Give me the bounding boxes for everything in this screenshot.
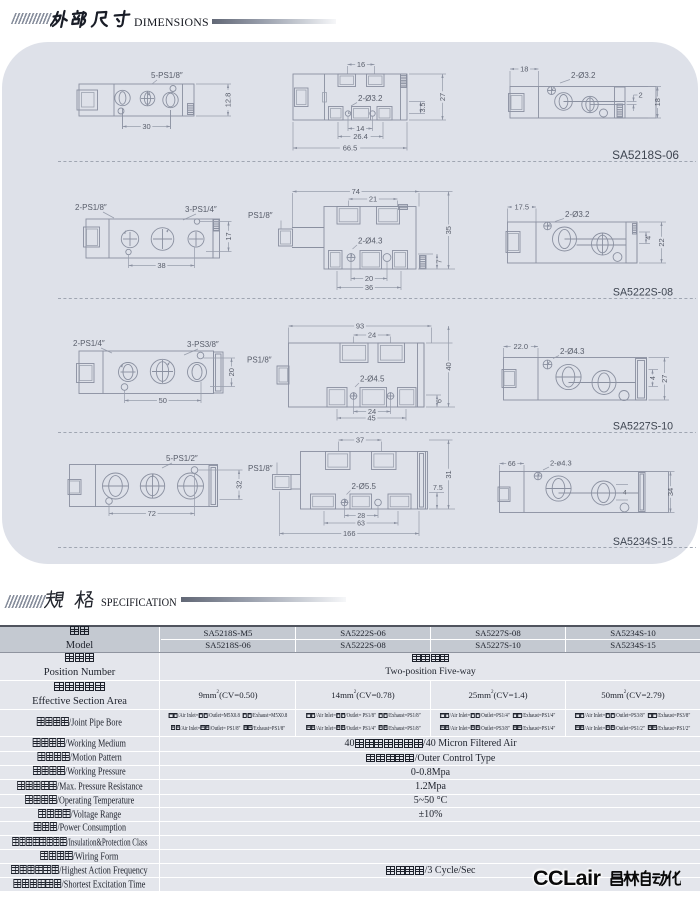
svg-text:50: 50 [159, 396, 167, 405]
svg-text:24: 24 [368, 331, 376, 340]
svg-text:3.5: 3.5 [420, 103, 427, 113]
svg-text:SA5222S-08: SA5222S-08 [613, 287, 673, 299]
svg-text:SA5227S-10: SA5227S-10 [613, 421, 673, 433]
svg-text:3-PS3/8″: 3-PS3/8″ [187, 340, 219, 349]
svg-text:SA5234S-15: SA5234S-15 [613, 536, 673, 548]
svg-text:4: 4 [650, 376, 657, 380]
svg-text:66: 66 [508, 461, 516, 468]
svg-text:38: 38 [157, 261, 165, 270]
svg-text:72: 72 [148, 509, 156, 518]
svg-text:45: 45 [367, 414, 375, 423]
svg-text:36: 36 [365, 283, 373, 292]
svg-text:63: 63 [357, 521, 365, 528]
svg-text:4: 4 [623, 490, 627, 497]
svg-text:26.4: 26.4 [353, 132, 368, 141]
svg-text:5-PS1/8″: 5-PS1/8″ [151, 71, 183, 80]
svg-text:3-PS1/4″: 3-PS1/4″ [185, 205, 217, 214]
svg-text:20: 20 [365, 274, 373, 283]
svg-text:166: 166 [343, 529, 356, 538]
svg-text:4: 4 [645, 236, 652, 240]
svg-text:2-ø4.3: 2-ø4.3 [550, 459, 572, 468]
svg-text:27: 27 [438, 93, 447, 101]
svg-text:PS1/8″: PS1/8″ [247, 356, 272, 365]
svg-text:16: 16 [357, 60, 365, 69]
svg-text:17: 17 [224, 232, 233, 240]
svg-text:35: 35 [444, 226, 453, 234]
svg-text:74: 74 [352, 187, 360, 196]
svg-text:20: 20 [227, 368, 236, 376]
svg-text:SA5218S-06: SA5218S-06 [612, 148, 679, 162]
svg-text:2-Ø4.3: 2-Ø4.3 [560, 347, 585, 356]
svg-text:18: 18 [520, 65, 528, 74]
svg-text:28: 28 [357, 513, 365, 520]
svg-text:27: 27 [660, 375, 669, 383]
svg-text:PS1/8″: PS1/8″ [248, 464, 273, 473]
svg-text:2-Ø3.2: 2-Ø3.2 [565, 210, 590, 219]
svg-text:37: 37 [356, 436, 364, 445]
svg-text:12.8: 12.8 [224, 93, 233, 108]
svg-text:2-Ø4.3: 2-Ø4.3 [358, 237, 383, 246]
svg-text:5-PS1/2″: 5-PS1/2″ [166, 454, 198, 463]
svg-text:30: 30 [142, 122, 150, 131]
svg-text:2: 2 [639, 91, 643, 100]
svg-text:PS1/8″: PS1/8″ [248, 211, 273, 220]
svg-text:66.5: 66.5 [343, 144, 358, 153]
svg-text:18: 18 [653, 98, 662, 106]
svg-text:2-Ø5.5: 2-Ø5.5 [352, 482, 377, 491]
svg-text:40: 40 [444, 362, 453, 370]
svg-text:2-Ø4.5: 2-Ø4.5 [360, 375, 385, 384]
svg-text:2-Ø3.2: 2-Ø3.2 [358, 94, 383, 103]
svg-text:21: 21 [369, 195, 377, 204]
svg-text:31: 31 [444, 470, 453, 478]
svg-text:7.5: 7.5 [433, 485, 443, 492]
svg-text:6: 6 [436, 399, 443, 403]
svg-text:2-Ø3.2: 2-Ø3.2 [571, 71, 596, 80]
svg-text:22.0: 22.0 [513, 342, 528, 351]
svg-text:22: 22 [657, 238, 666, 246]
svg-text:34: 34 [666, 488, 675, 496]
svg-text:17.5: 17.5 [514, 203, 529, 212]
svg-text:2-PS1/4″: 2-PS1/4″ [73, 339, 105, 348]
svg-text:2-PS1/8″: 2-PS1/8″ [75, 203, 107, 212]
svg-text:7: 7 [436, 259, 443, 263]
svg-text:93: 93 [356, 322, 364, 331]
svg-text:32: 32 [235, 481, 244, 489]
